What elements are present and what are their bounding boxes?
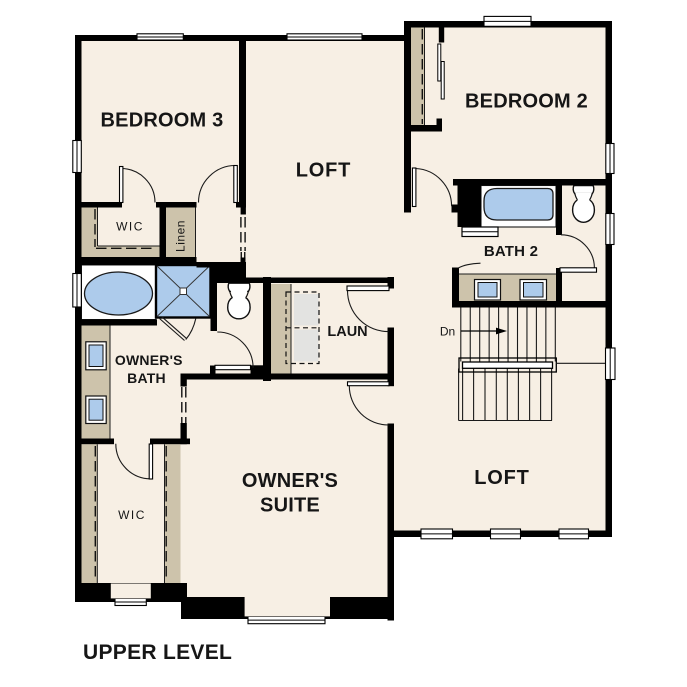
svg-text:WIC: WIC xyxy=(116,220,144,234)
svg-text:Linen: Linen xyxy=(174,220,188,252)
svg-text:BATH 2: BATH 2 xyxy=(484,243,538,260)
svg-text:OWNER'S: OWNER'S xyxy=(242,470,338,492)
svg-text:UPPER LEVEL: UPPER LEVEL xyxy=(83,641,232,664)
svg-text:LOFT: LOFT xyxy=(474,467,529,489)
svg-text:LAUN: LAUN xyxy=(327,324,367,340)
svg-text:OWNER'S: OWNER'S xyxy=(115,352,183,368)
svg-text:BEDROOM 3: BEDROOM 3 xyxy=(101,110,224,132)
svg-text:LOFT: LOFT xyxy=(296,160,351,182)
svg-text:WIC: WIC xyxy=(118,508,146,522)
svg-text:BATH: BATH xyxy=(127,370,166,386)
svg-text:SUITE: SUITE xyxy=(260,495,320,517)
svg-text:Dn: Dn xyxy=(440,325,455,339)
svg-text:BEDROOM 2: BEDROOM 2 xyxy=(465,91,588,113)
